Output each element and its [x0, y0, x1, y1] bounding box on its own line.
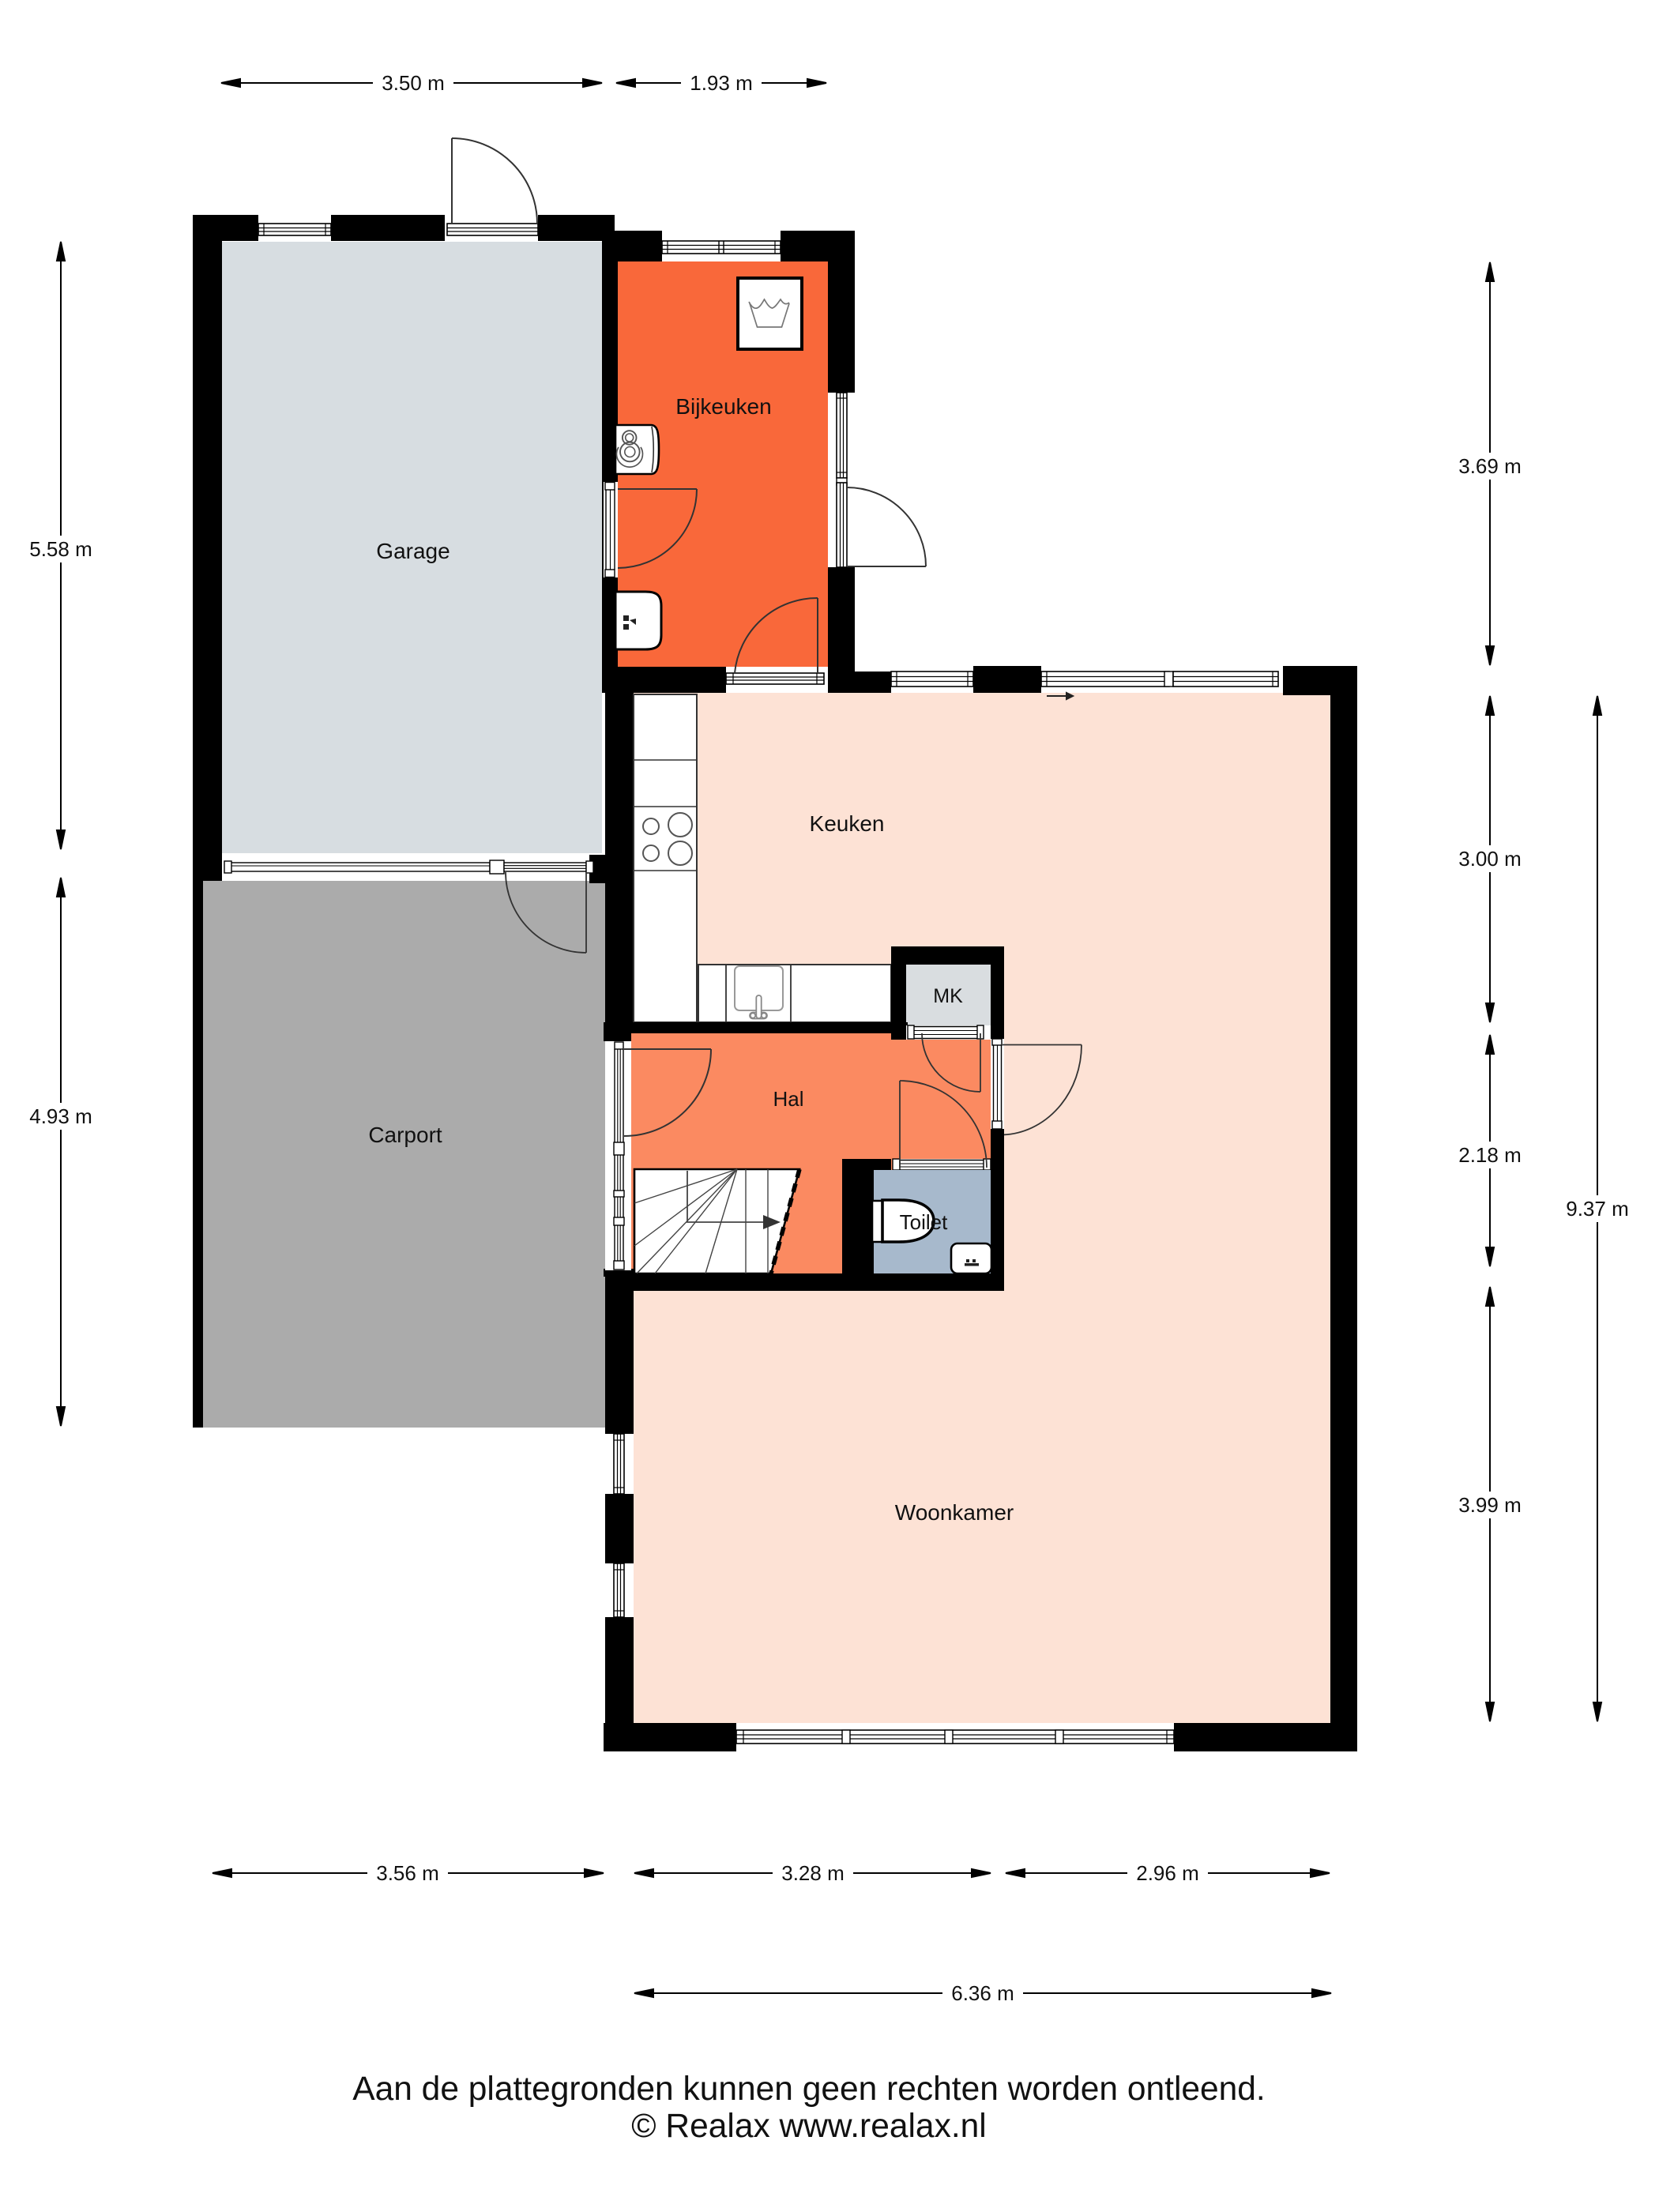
- svg-text:3.69 m: 3.69 m: [1458, 454, 1522, 478]
- svg-text:3.50 m: 3.50 m: [382, 71, 445, 95]
- svg-text:5.58 m: 5.58 m: [29, 537, 92, 561]
- svg-text:Bijkeuken: Bijkeuken: [675, 394, 771, 419]
- svg-text:Toilet: Toilet: [900, 1210, 948, 1234]
- svg-text:Keuken: Keuken: [810, 811, 885, 836]
- svg-text:© Realax www.realax.nl: © Realax www.realax.nl: [631, 2108, 986, 2145]
- svg-text:1.93 m: 1.93 m: [690, 71, 753, 95]
- svg-text:Garage: Garage: [376, 539, 450, 563]
- svg-text:9.37 m: 9.37 m: [1566, 1197, 1629, 1221]
- svg-text:Hal: Hal: [773, 1087, 803, 1111]
- svg-text:3.00 m: 3.00 m: [1458, 847, 1522, 871]
- svg-text:6.36 m: 6.36 m: [951, 1981, 1014, 2005]
- svg-text:3.99 m: 3.99 m: [1458, 1493, 1522, 1517]
- svg-text:3.56 m: 3.56 m: [376, 1861, 439, 1885]
- svg-text:2.96 m: 2.96 m: [1136, 1861, 1199, 1885]
- svg-text:Carport: Carport: [368, 1123, 442, 1147]
- svg-text:MK: MK: [933, 985, 963, 1007]
- svg-text:Woonkamer: Woonkamer: [895, 1500, 1014, 1525]
- svg-text:2.18 m: 2.18 m: [1458, 1143, 1522, 1167]
- svg-text:3.28 m: 3.28 m: [781, 1861, 845, 1885]
- svg-text:Aan de plattegronden kunnen ge: Aan de plattegronden kunnen geen rechten…: [352, 2071, 1266, 2108]
- svg-text:4.93 m: 4.93 m: [29, 1104, 92, 1128]
